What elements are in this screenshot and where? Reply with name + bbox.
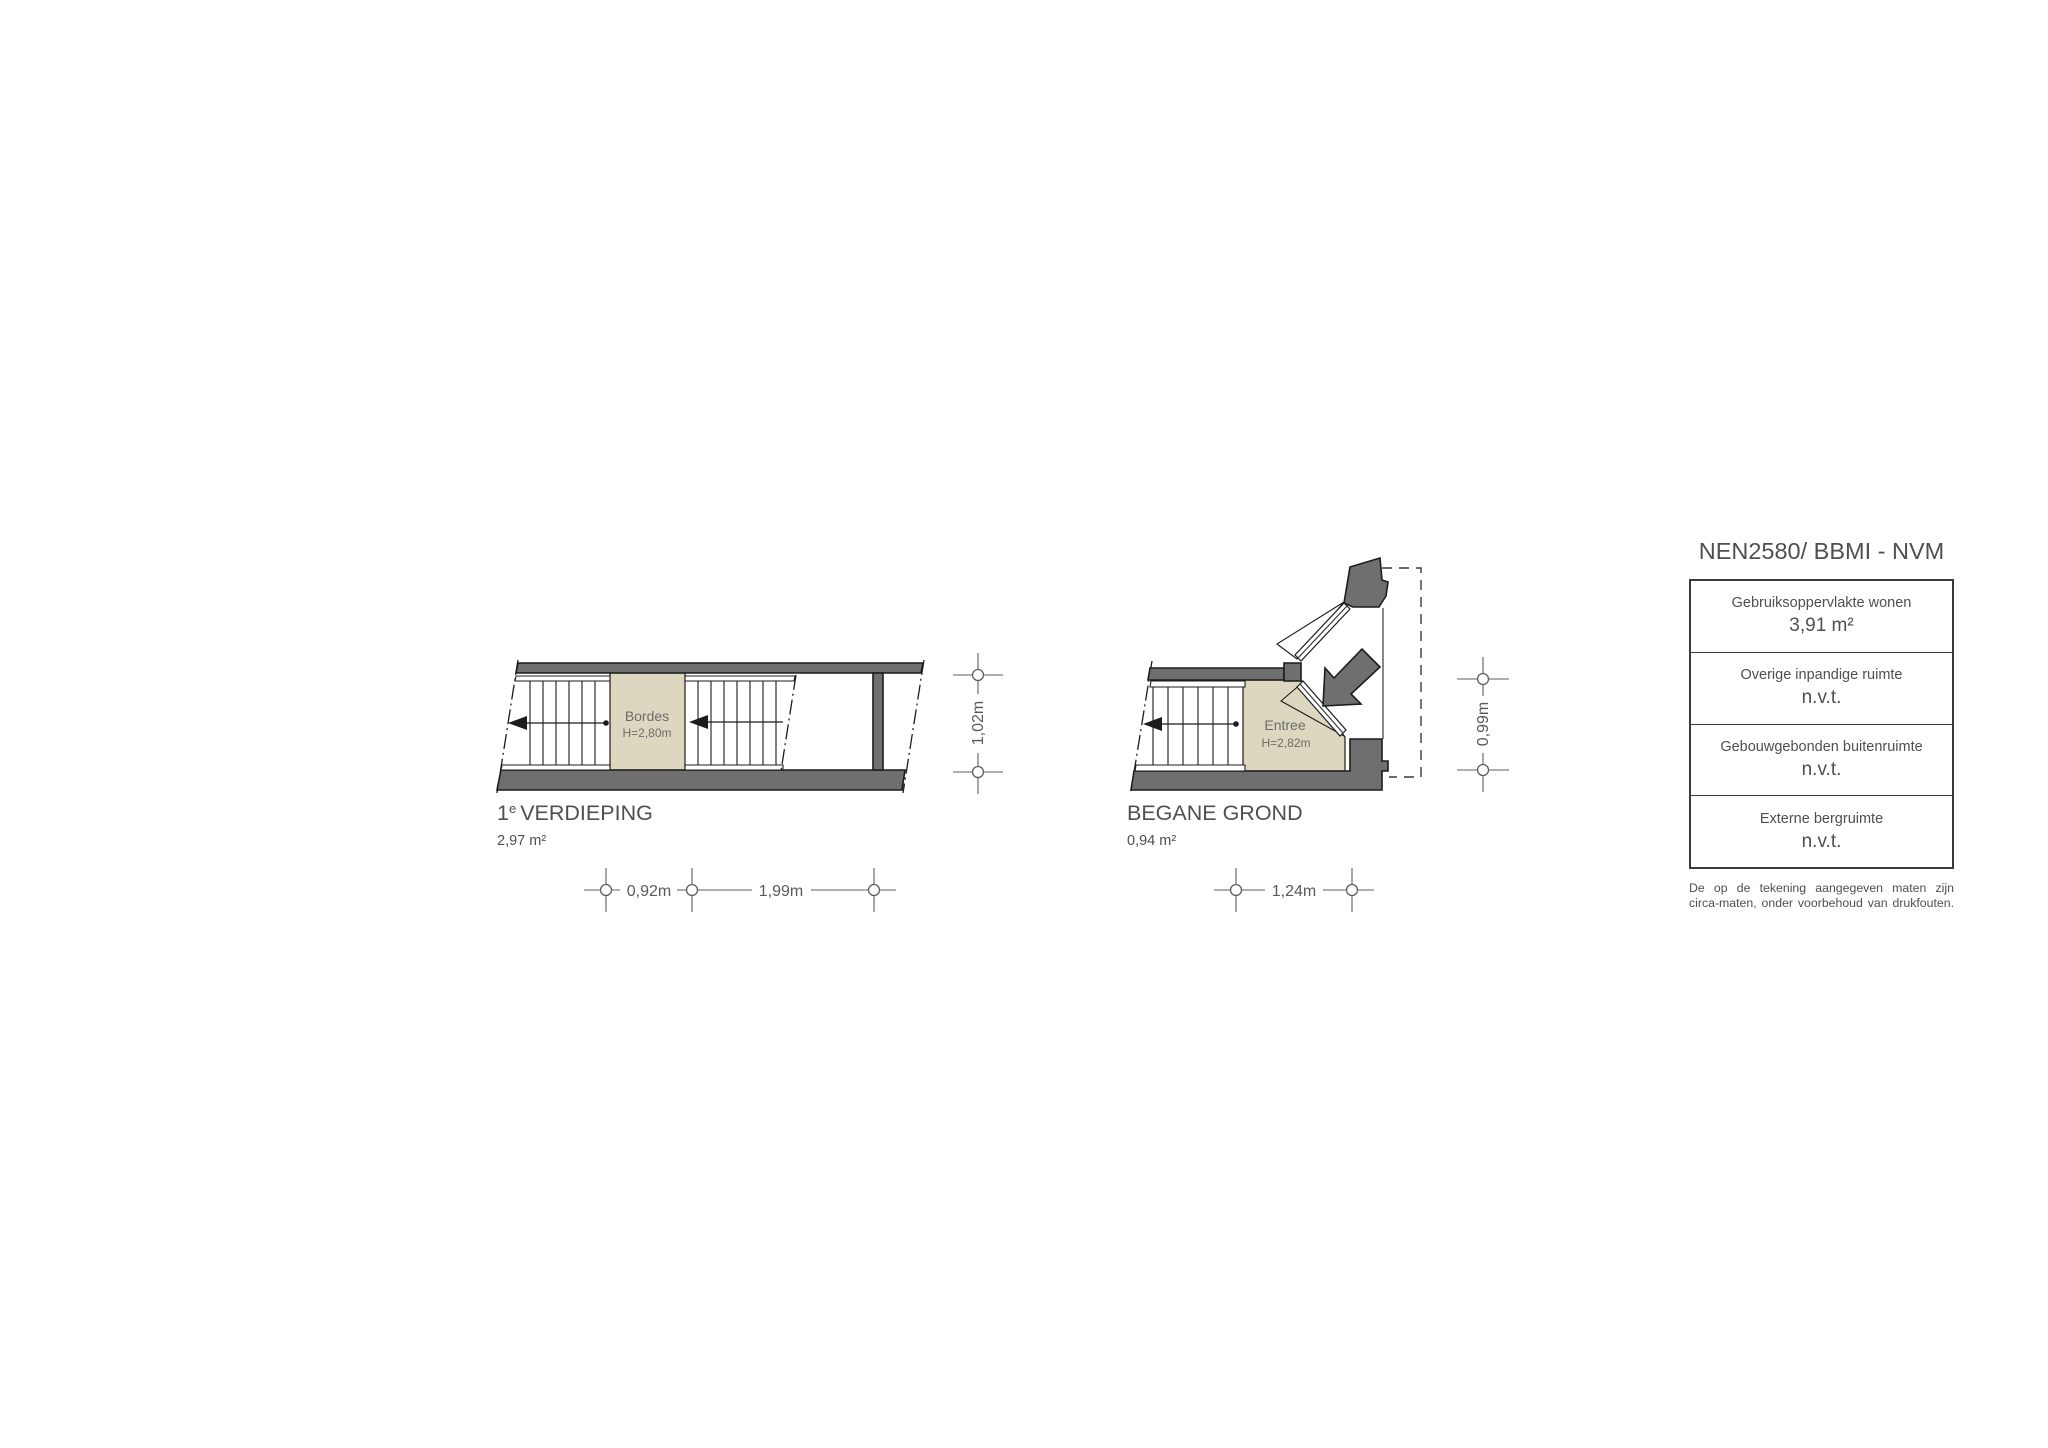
top-wall [516, 663, 923, 673]
legend-disclaimer-line: circa-maten, onder voorbehoud van drukfo… [1689, 896, 1954, 911]
entry-pier [1344, 558, 1388, 607]
stair-stringer [1150, 681, 1245, 687]
bottom-wall [497, 770, 905, 790]
entrance-arrow-icon [1323, 649, 1380, 706]
dimension-horizontal: 0,92m 1,99m [584, 868, 896, 912]
stair-direction-arrow [1143, 717, 1239, 731]
legend-row: Externe bergruimte n.v.t. [1691, 795, 1952, 867]
dimension-vertical: 1,02m [953, 653, 1003, 794]
divider-wall [873, 673, 883, 770]
room-height-label: H=2,82m [1261, 736, 1310, 750]
top-wall [1148, 668, 1284, 680]
legend-row-value: n.v.t. [1802, 831, 1842, 853]
svg-text:0,99m: 0,99m [1475, 702, 1492, 746]
legend-row: Gebouwgebonden buitenruimte n.v.t. [1691, 724, 1952, 796]
plan-title: BEGANE GROND [1127, 801, 1303, 825]
stair-treads-right [698, 681, 776, 765]
plan-area: 0,94 m² [1127, 833, 1176, 849]
legend-title: NEN2580/ BBMI - NVM [1689, 538, 1954, 565]
floorplan-page: Bordes H=2,80m 1eVERDIEPING 2,97 m² 0,92… [0, 0, 2048, 1448]
stair-stringer [1135, 765, 1245, 771]
plan-title: 1eVERDIEPING [497, 801, 653, 825]
legend-row-label: Gebruiksoppervlakte wonen [1732, 595, 1912, 611]
plan-area: 2,97 m² [497, 833, 546, 849]
legend-row: Gebruiksoppervlakte wonen 3,91 m² [1691, 581, 1952, 652]
room-label: Entree [1264, 717, 1305, 733]
dimension-horizontal: 1,24m [1214, 868, 1374, 912]
svg-text:1,02m: 1,02m [970, 701, 987, 745]
stair-break-line [781, 675, 796, 771]
stair-stringer [685, 765, 783, 770]
nen2580-legend: NEN2580/ BBMI - NVM Gebruiksoppervlakte … [1689, 538, 1954, 910]
room-height-label: H=2,80m [622, 726, 671, 740]
legend-row-label: Externe bergruimte [1760, 811, 1883, 827]
legend-row-label: Overige inpandige ruimte [1740, 667, 1902, 683]
stair-stringer [501, 765, 610, 770]
section-cut-right [903, 660, 924, 793]
svg-text:1,24m: 1,24m [1272, 883, 1316, 900]
legend-disclaimer-line: De op de tekening aangegeven maten zijn [1689, 881, 1954, 896]
first-floor-plan: Bordes H=2,80m 1eVERDIEPING 2,97 m² 0,92… [497, 653, 1003, 912]
legend-row-label: Gebouwgebonden buitenruimte [1720, 739, 1922, 755]
stair-stringer [685, 676, 795, 681]
legend-row-value: 3,91 m² [1789, 615, 1853, 637]
stair-direction-arrow [689, 715, 783, 729]
legend-row-value: n.v.t. [1802, 759, 1842, 781]
stair-stringer [515, 676, 610, 681]
svg-text:1,99m: 1,99m [759, 883, 803, 900]
room-label: Bordes [625, 708, 669, 724]
legend-disclaimer: De op de tekening aangegeven maten zijn … [1689, 881, 1954, 910]
legend-table: Gebruiksoppervlakte wonen 3,91 m² Overig… [1689, 579, 1954, 869]
legend-row-value: n.v.t. [1802, 687, 1842, 709]
stair-direction-arrow [508, 716, 609, 730]
dimension-vertical: 0,99m [1457, 657, 1509, 792]
legend-row: Overige inpandige ruimte n.v.t. [1691, 652, 1952, 724]
door-post [1284, 663, 1301, 681]
ground-floor-plan: Entree H=2,82m BEGANE GROND 0,94 m² 1,24… [1127, 558, 1509, 912]
stair-treads [1153, 687, 1228, 765]
svg-text:0,92m: 0,92m [627, 883, 671, 900]
property-boundary-dashed [1382, 568, 1421, 777]
